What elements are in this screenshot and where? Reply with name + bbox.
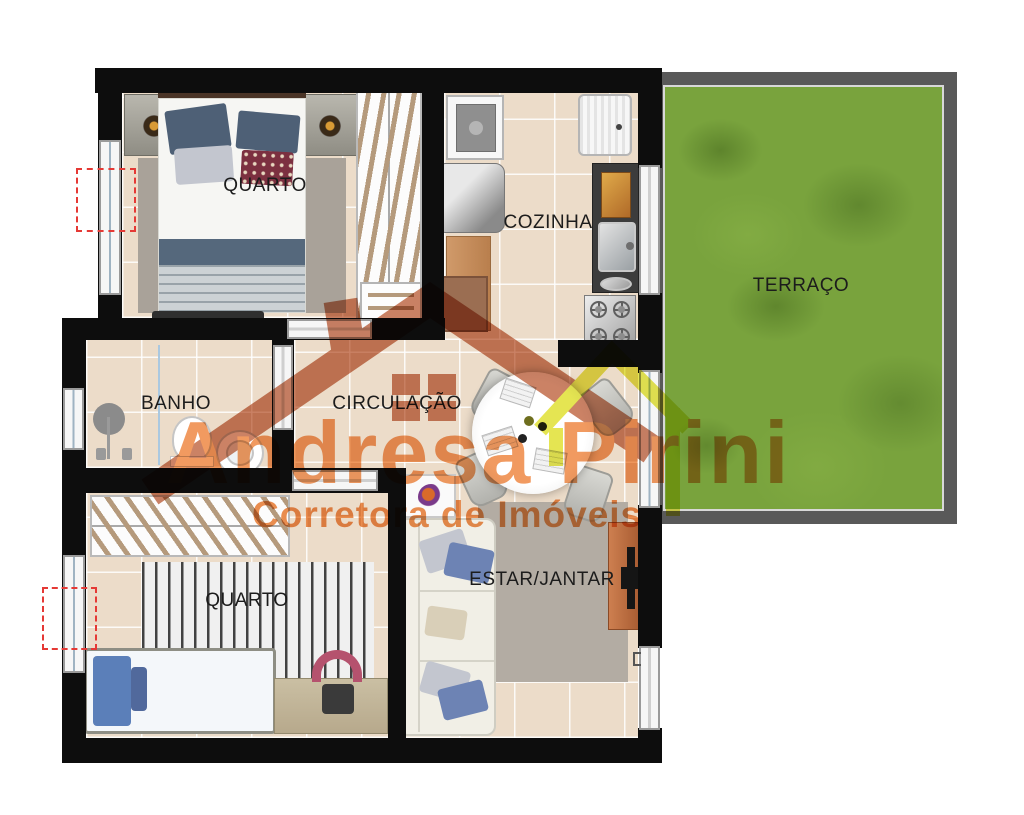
cutting-board [601, 172, 631, 218]
living-terrace-window [639, 370, 660, 508]
terrace-label: TERRAÇO [753, 275, 849, 297]
bedroom2-label: QUARTO [205, 590, 289, 612]
washing-machine [446, 95, 504, 160]
circulation-label: CIRCULAÇÃO [332, 393, 462, 415]
kitchen-doormat [438, 276, 488, 332]
shower-taps [96, 448, 106, 460]
flower-vase [418, 484, 444, 510]
placemat [481, 426, 518, 457]
terrace-grass [663, 85, 944, 511]
wall-right-3 [638, 505, 662, 648]
desk-chair-seat [322, 684, 354, 714]
living-rug [478, 502, 628, 682]
wall-right-1 [638, 68, 662, 168]
bedroom2-door [292, 470, 378, 491]
terrace-area [650, 72, 957, 524]
pillow [93, 656, 131, 726]
wall-kitchen-left [422, 68, 444, 340]
kitchen-sink [598, 222, 636, 272]
bedroom1-window-swing [76, 168, 136, 232]
bed-duvet [159, 265, 305, 312]
shower-head-icon [93, 403, 125, 435]
bathroom-label: BANHO [141, 393, 211, 415]
toilet-tank [170, 456, 214, 467]
bedroom2-window-swing [42, 587, 97, 650]
wall-bedroom2-right [388, 468, 406, 763]
side-table [404, 474, 456, 518]
fridge [441, 163, 505, 233]
living-dining-label: ESTAR/JANTAR [469, 569, 615, 591]
sofa [398, 518, 496, 736]
washer-drum-icon [456, 104, 496, 152]
wall-bottom [62, 738, 662, 763]
bedroom1-door [287, 319, 372, 339]
double-bed [158, 98, 306, 313]
floor-plan: TERRAÇO QUARTO [0, 0, 1024, 815]
bathroom-door [273, 345, 293, 430]
single-bed [84, 648, 276, 734]
kitchen-counter-dark [592, 163, 639, 293]
shower-taps [122, 448, 132, 460]
nightstand-right [300, 94, 358, 156]
lamp-icon [319, 115, 341, 137]
pillow [424, 605, 468, 640]
wall-right-4 [638, 728, 662, 763]
bed-band [159, 239, 305, 265]
pillow [131, 667, 147, 711]
centerpiece [518, 434, 527, 443]
wall-top [95, 68, 662, 93]
dining-table [472, 372, 594, 494]
bedroom2-wardrobe [90, 495, 290, 557]
door-handle-icon [633, 652, 641, 666]
kitchen-terrace-door [639, 165, 660, 295]
bedroom1-label: QUARTO [223, 175, 307, 197]
laundry-tank [578, 94, 632, 156]
bathroom-window [63, 388, 84, 450]
centerpiece [524, 416, 534, 426]
wall-right-2 [638, 293, 662, 373]
placemat [532, 447, 567, 474]
tv [621, 567, 639, 589]
kitchen-label: COZINHA [504, 212, 593, 234]
placemat [499, 378, 536, 409]
wall-bedroom1-bottom [62, 318, 445, 340]
centerpiece [538, 422, 547, 431]
dish-tray [600, 277, 632, 291]
pillow [235, 110, 300, 153]
entrance-door [639, 646, 660, 730]
